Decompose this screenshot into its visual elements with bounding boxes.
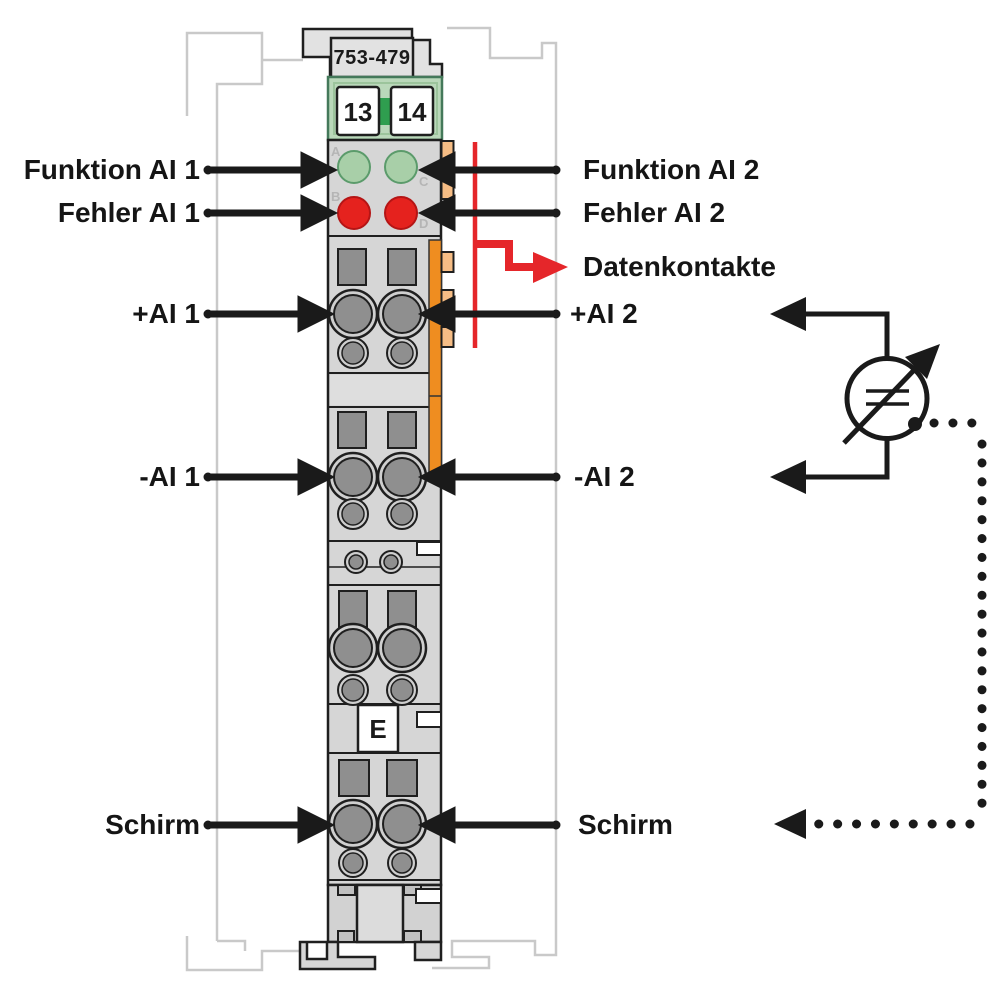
base-center-block: [357, 885, 403, 942]
led-marker-b: B: [331, 189, 340, 204]
label-datenkontakte: Datenkontakte: [583, 250, 776, 284]
arrow-schirm-left: [204, 807, 334, 843]
datenkontakte-arrow: [477, 244, 568, 283]
label-fehler-ai-1: Fehler AI 1: [58, 196, 200, 230]
arrow-fehler-ai1: [204, 195, 337, 231]
diagram-canvas: 753-479 13 14 A B C D: [0, 0, 1000, 1000]
left-neighbor-outline-top: [187, 33, 303, 116]
base-right-notch: [416, 889, 441, 903]
label-minus-ai-1: -AI 1: [139, 460, 200, 494]
label-funktion-ai-1: Funktion AI 1: [24, 153, 200, 187]
release-notch: [417, 542, 441, 555]
power-jumper-strip: [429, 240, 442, 478]
terminal-14-text: 14: [398, 97, 427, 127]
led-fehler-ai1: [338, 197, 370, 229]
led-funktion-ai2: [385, 151, 417, 183]
led-funktion-ai1: [338, 151, 370, 183]
arrow-plus-ai1: [204, 296, 334, 332]
led-marker-d: D: [419, 216, 428, 231]
arrow-funktion-ai1: [204, 152, 337, 188]
adjustable-dc-source-symbol: [770, 297, 940, 494]
led-marker-c: C: [419, 174, 429, 189]
label-schirm-left: Schirm: [105, 808, 200, 842]
label-funktion-ai-2: Funktion AI 2: [583, 153, 759, 187]
pointer-arrows-left: [204, 152, 337, 843]
wiring-diagram: 753-479 13 14 A B C D: [0, 0, 1000, 1000]
part-number-text: 753-479: [334, 47, 411, 69]
left-neighbor-outline-vertical: [217, 61, 262, 941]
label-minus-ai-2: -AI 2: [574, 460, 635, 494]
label-plus-ai-2: +AI 2: [570, 297, 638, 331]
arrow-minus-ai1: [204, 459, 334, 495]
earth-label-text: E: [369, 714, 386, 744]
label-plus-ai-1: +AI 1: [132, 297, 200, 331]
left-neighbor-outline-bottom-step: [217, 941, 245, 951]
label-schirm-right: Schirm: [578, 808, 673, 842]
led-fehler-ai2: [385, 197, 417, 229]
mounting-foot-left: [300, 942, 375, 969]
source-lead-top: [770, 297, 887, 359]
shield-arrowhead: [774, 809, 806, 839]
terminal-13-text: 13: [344, 97, 373, 127]
release-notch: [417, 712, 441, 727]
power-jumper-contact: [442, 252, 454, 272]
mounting-foot-right: [415, 942, 441, 960]
label-fehler-ai-2: Fehler AI 2: [583, 196, 725, 230]
led-marker-a: A: [331, 144, 341, 159]
shield-node-dot: [908, 417, 922, 431]
body-gap-section: [330, 375, 440, 405]
source-lead-bottom: [770, 438, 887, 494]
